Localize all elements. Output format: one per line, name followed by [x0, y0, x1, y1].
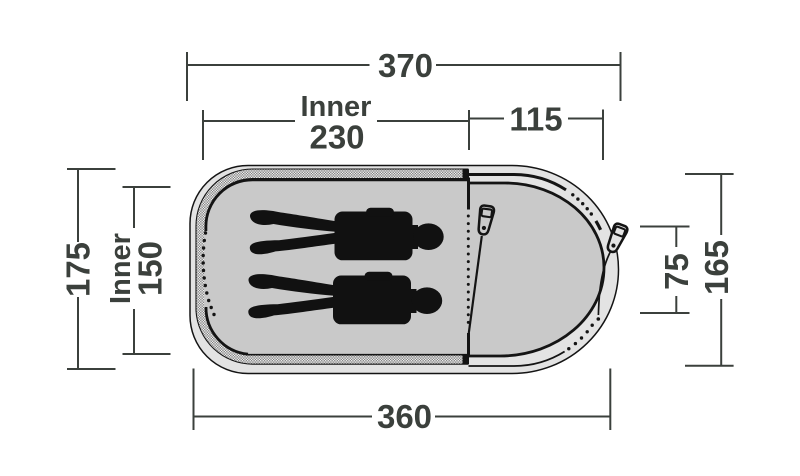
svg-text:360: 360 [377, 398, 432, 435]
svg-text:370: 370 [378, 47, 433, 84]
svg-text:75: 75 [658, 253, 695, 290]
svg-text:115: 115 [509, 101, 562, 138]
svg-text:230: 230 [309, 119, 364, 156]
svg-text:150: 150 [132, 241, 169, 296]
svg-text:165: 165 [698, 240, 735, 295]
svg-text:175: 175 [60, 242, 97, 297]
